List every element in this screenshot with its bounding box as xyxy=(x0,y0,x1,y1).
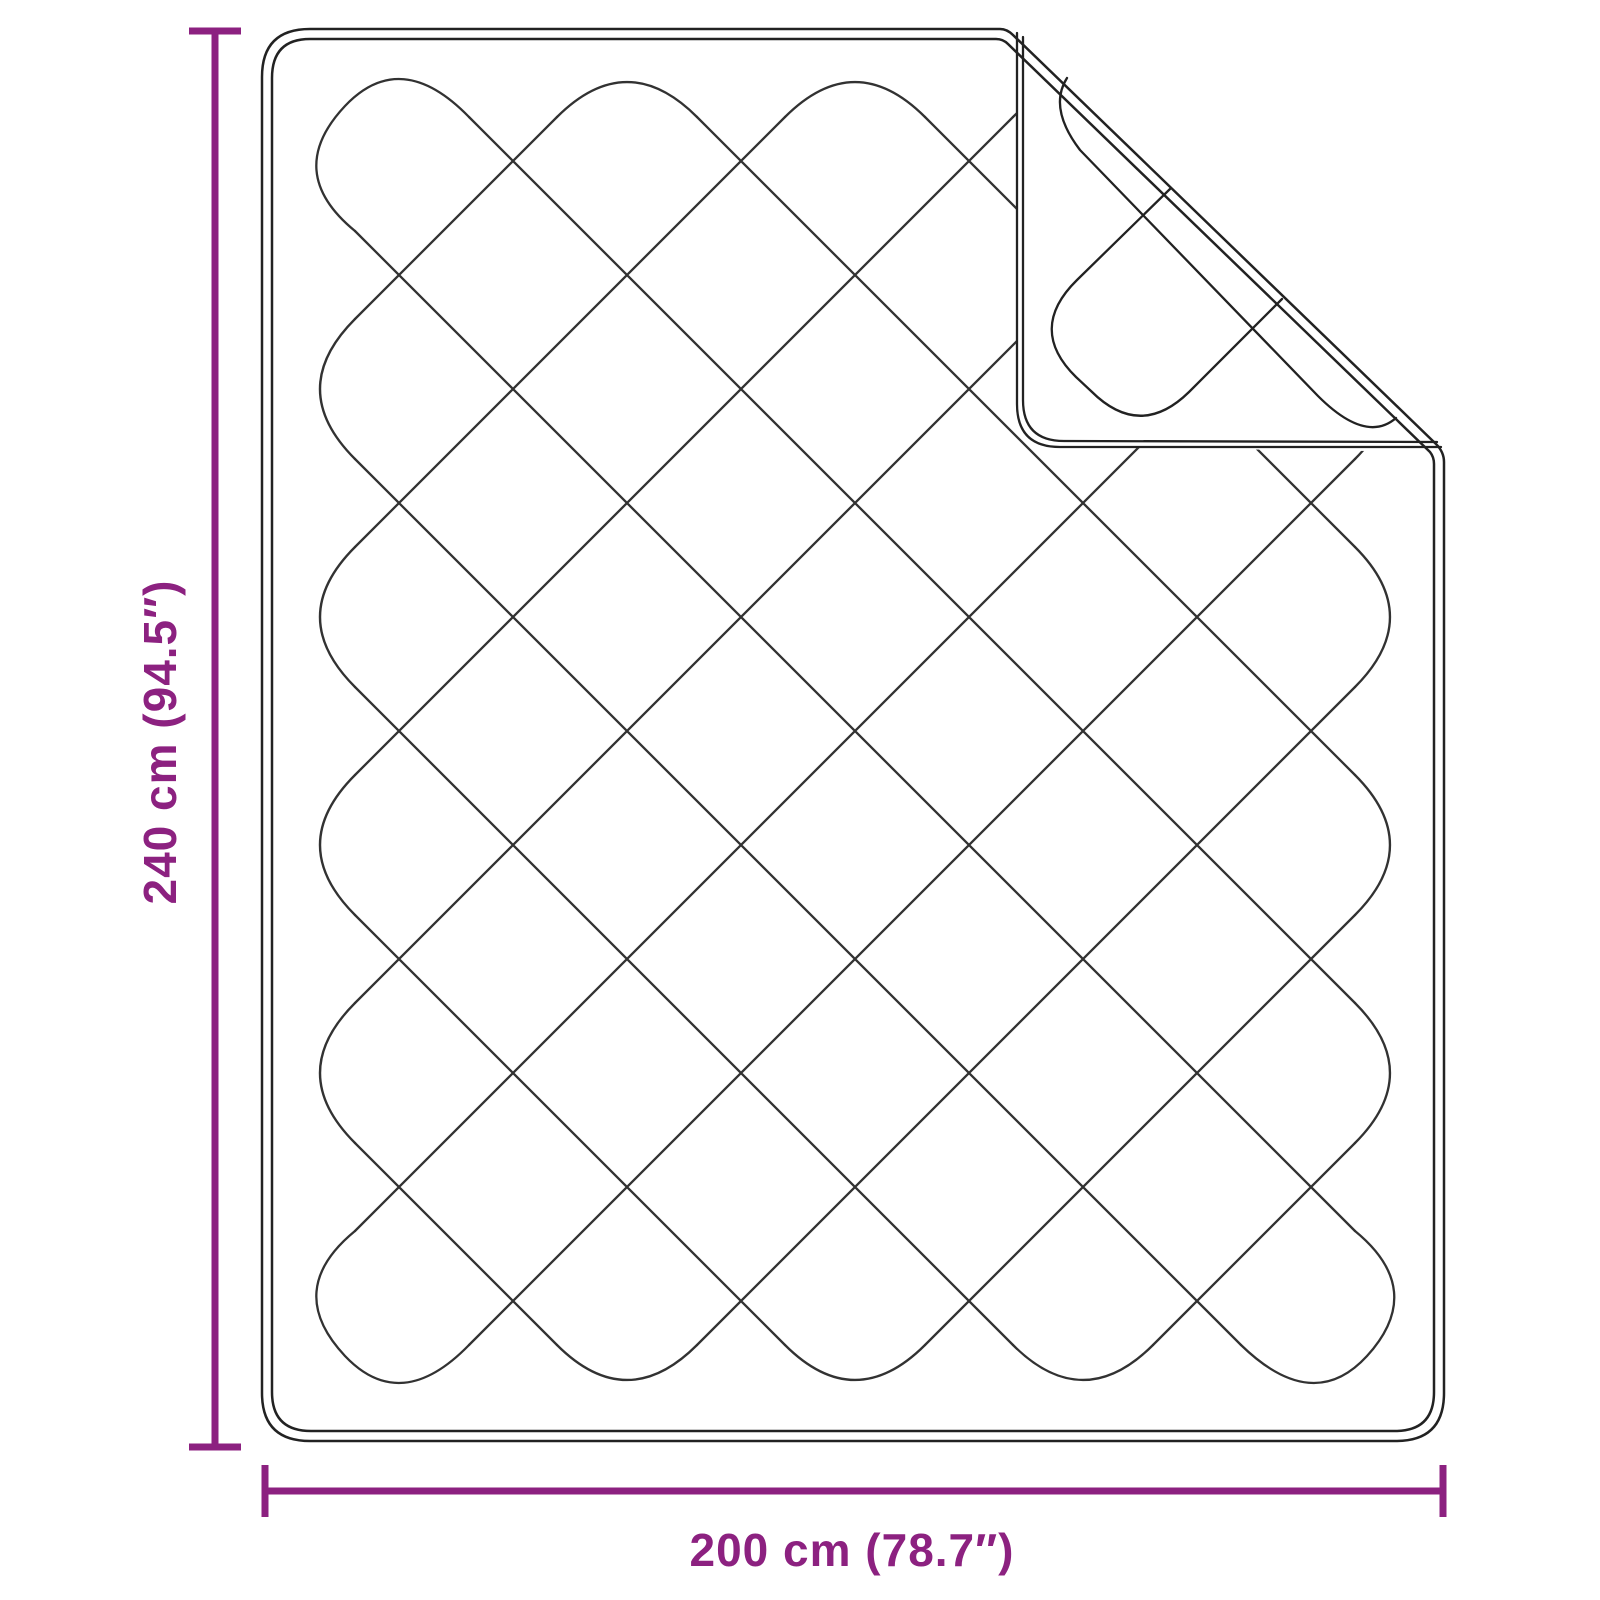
product-dimension-diagram: 240 cm (94.5″) 200 cm (78.7″) xyxy=(0,0,1600,1600)
height-label: 240 cm (94.5″) xyxy=(134,580,186,905)
width-label: 200 cm (78.7″) xyxy=(690,1524,1015,1576)
diagram-canvas: 240 cm (94.5″) 200 cm (78.7″) xyxy=(0,0,1600,1600)
height-dimension xyxy=(189,31,241,1447)
blanket-outline xyxy=(262,29,1444,1441)
blanket-outline-inner xyxy=(272,39,1434,1431)
width-dimension xyxy=(265,1465,1443,1517)
blanket-outline-outer xyxy=(262,29,1444,1441)
